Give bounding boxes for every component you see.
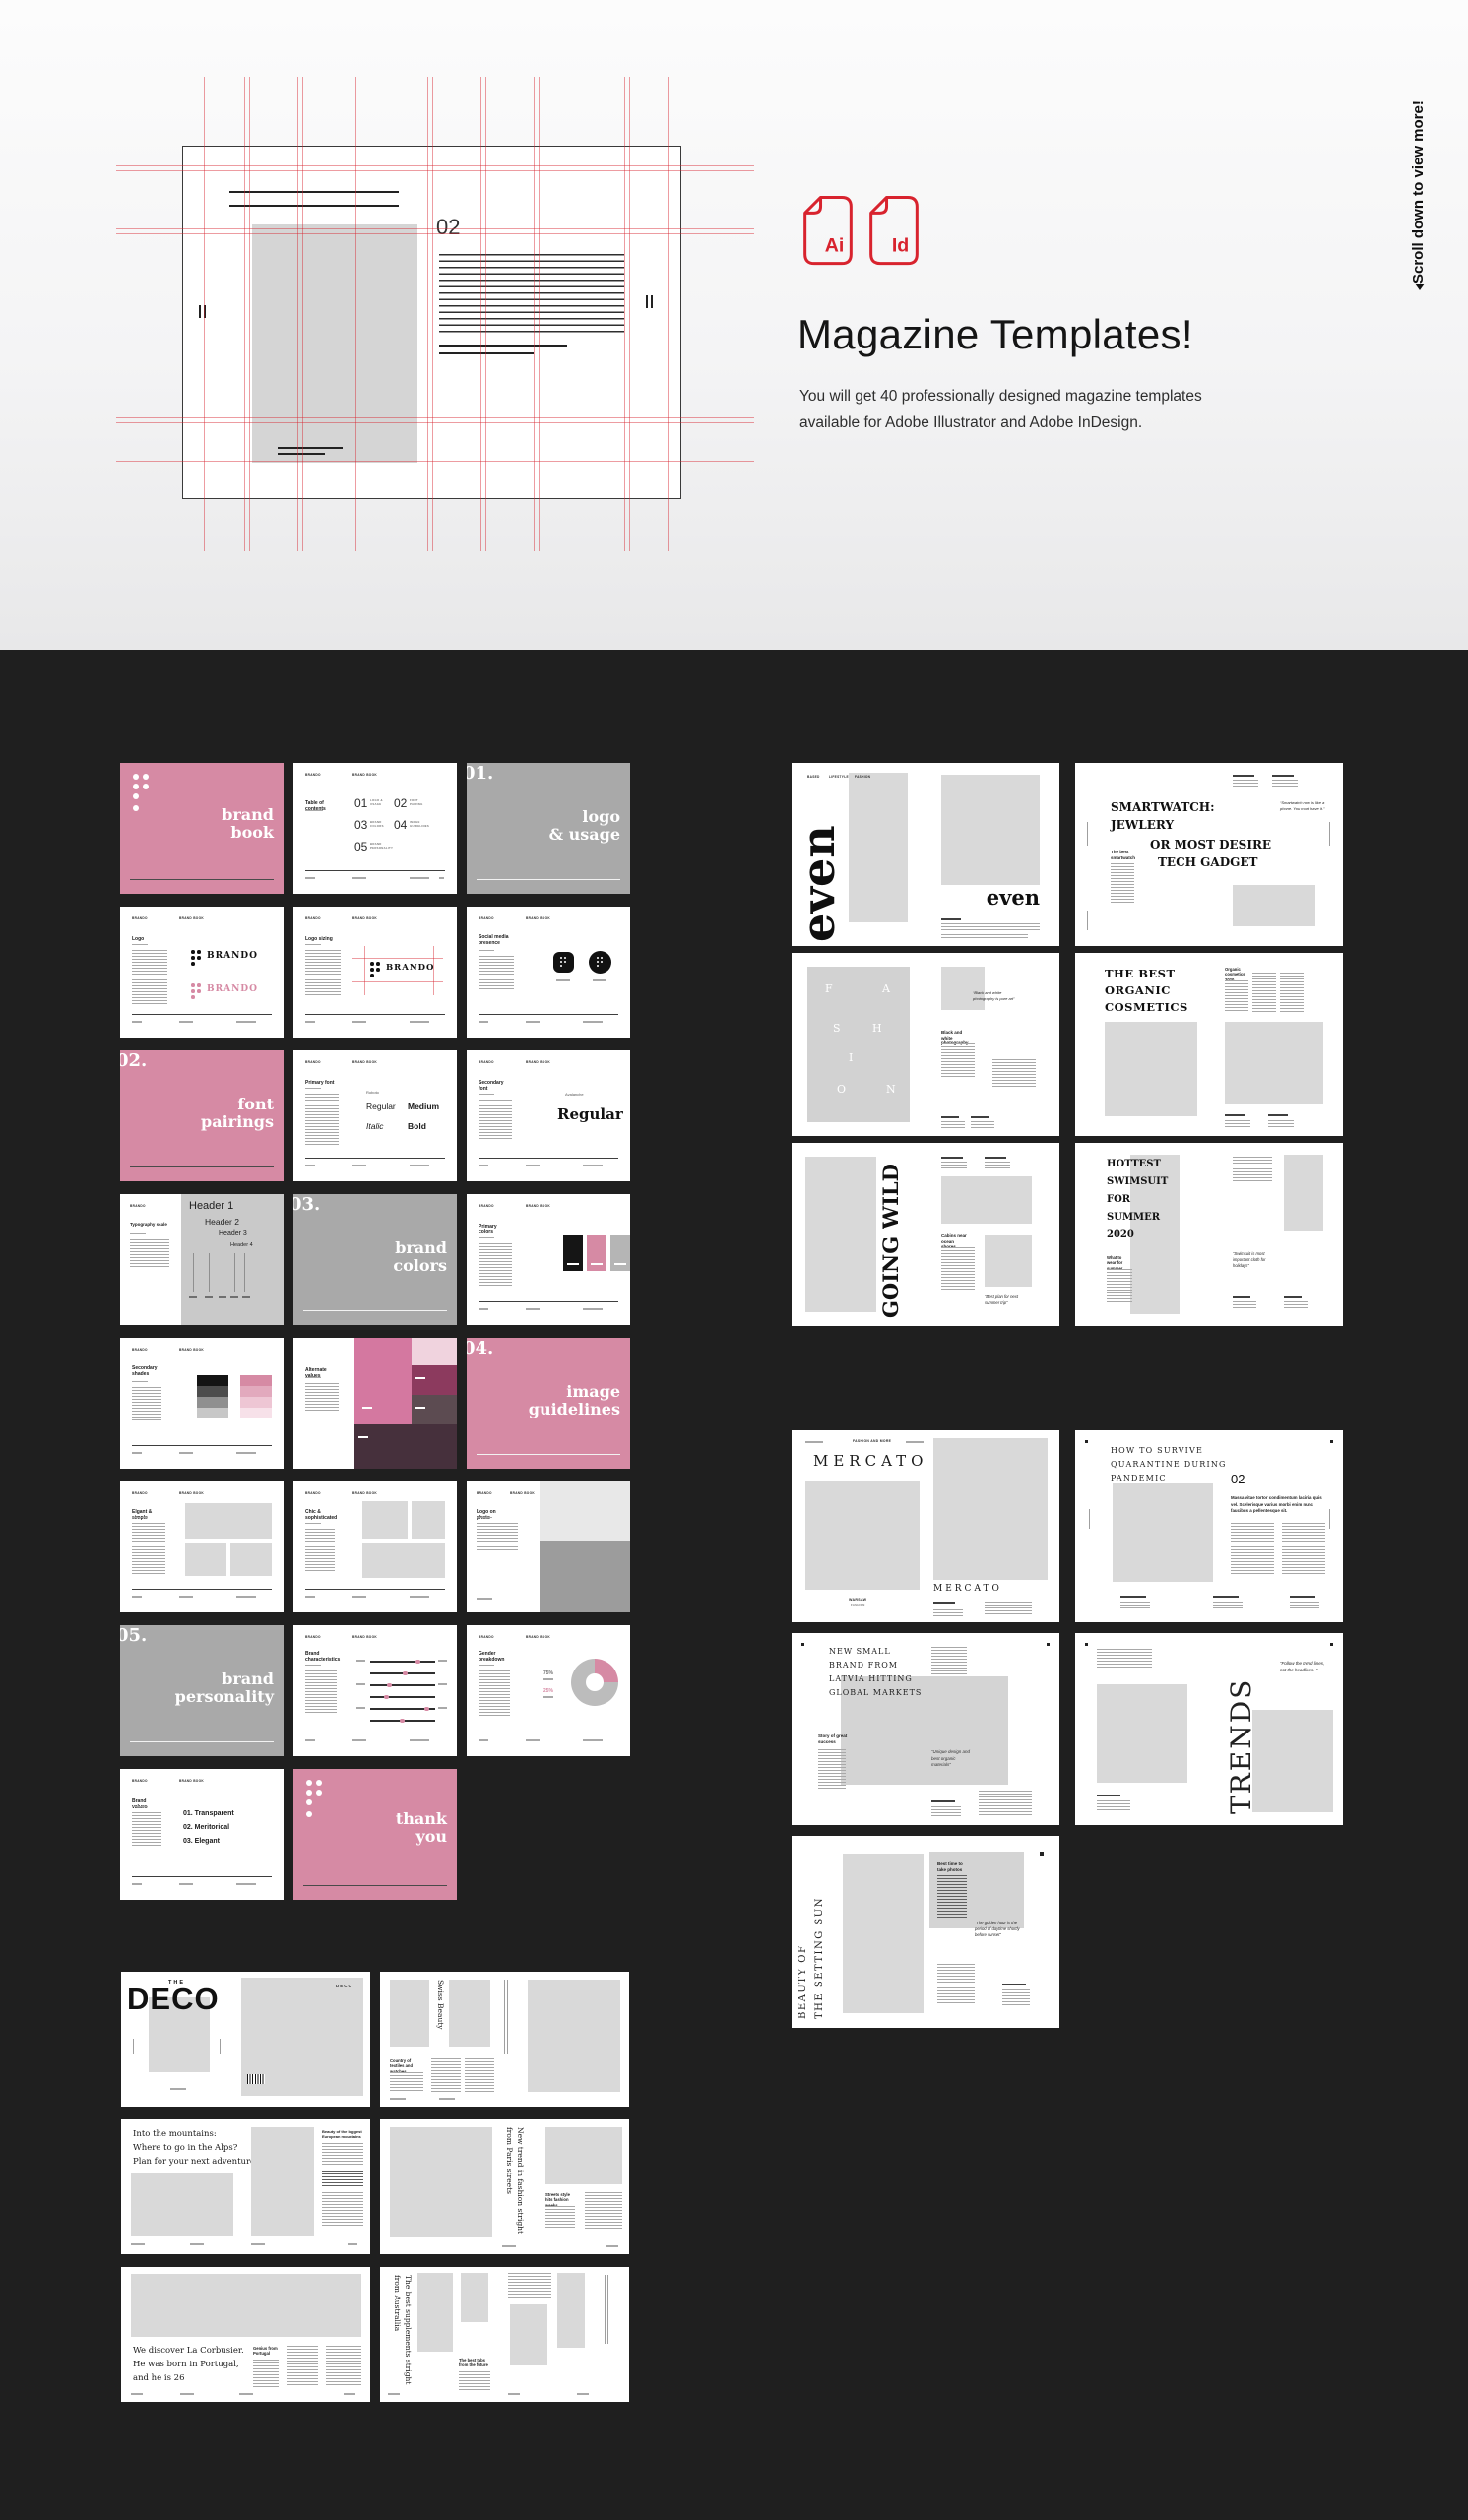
header-tag: FASHION AND MORE xyxy=(853,1439,891,1443)
title-underline xyxy=(479,1094,494,1095)
page-footer-rule xyxy=(305,1158,445,1159)
page-footer-text xyxy=(390,2098,406,2100)
grid-guide-vertical xyxy=(668,77,669,551)
color-swatch-pink xyxy=(587,1235,606,1271)
footer-lines xyxy=(1002,1989,1030,2005)
slider-dot xyxy=(387,1683,392,1688)
grid-guide-horizontal xyxy=(116,170,754,171)
page-footer-text xyxy=(410,1165,429,1166)
image-placeholder xyxy=(131,2274,361,2337)
image-placeholder xyxy=(545,2127,622,2184)
thumb-brand-characteristics: BRANDO BRAND BOOK Brand characteristics xyxy=(293,1625,457,1756)
donut-hole xyxy=(586,1673,604,1691)
image-placeholder xyxy=(390,1980,429,2047)
page-header-doc: BRAND BOOK xyxy=(526,1060,550,1064)
body-text-lines xyxy=(477,1523,518,1550)
shade-swatch xyxy=(240,1386,272,1397)
pt-label xyxy=(219,1296,226,1298)
brand-dots-logo xyxy=(306,1790,312,1795)
pull-quote: “Follow the trend lines, not the headlin… xyxy=(1280,1661,1331,1673)
brando-wordmark: BRANDO xyxy=(207,951,258,961)
edge-text xyxy=(133,2039,135,2054)
page-head xyxy=(985,1157,1006,1159)
chapter-number: 02. xyxy=(120,1050,147,1071)
slider-label xyxy=(438,1683,447,1685)
preview-page-number: 02 xyxy=(436,215,460,240)
page-header-doc: BRAND BOOK xyxy=(352,773,377,777)
thumb-corbusier-article: We discover La Corbusier. He was born in… xyxy=(121,2267,370,2402)
thumb-logo-on-photo: BRANDO BRAND BOOK Logo on photo xyxy=(467,1481,630,1612)
page-footer-text xyxy=(179,1452,193,1454)
chapter-title-line: personality xyxy=(175,1688,274,1706)
edge-text xyxy=(1087,911,1089,930)
deco-label: DECO xyxy=(336,1984,352,1988)
shade-swatch xyxy=(197,1408,228,1418)
pull-quote: “Unique design and best organic material… xyxy=(931,1749,973,1769)
fashion-letter: H xyxy=(872,1022,882,1035)
logo-dot xyxy=(370,968,374,972)
trends-title: TRENDS xyxy=(1225,1647,1272,1814)
stat-value-75: 75% xyxy=(543,1670,553,1676)
title-underline xyxy=(130,1233,146,1234)
pull-quote: “Black and white photography is pure art… xyxy=(973,990,1020,1002)
slider-line xyxy=(370,1661,435,1663)
brand-dots-logo xyxy=(316,1790,322,1795)
page-footer-rule xyxy=(305,870,445,871)
section-title: Logo on photo xyxy=(477,1509,510,1522)
article-lines xyxy=(585,2192,622,2230)
footer-head xyxy=(931,1800,955,1802)
headline-line: Plan for your next adventure. xyxy=(133,2157,258,2167)
body-text-lines xyxy=(479,956,514,989)
swiss-title: Swiss Beauty xyxy=(432,1980,445,2052)
chapter-title: image guidelines xyxy=(529,1383,620,1417)
page-footer-text xyxy=(577,2393,589,2395)
section-title: Typography scale xyxy=(130,1222,169,1228)
slider-label xyxy=(438,1707,447,1709)
barcode xyxy=(247,2074,265,2084)
image-placeholder xyxy=(849,773,908,922)
page-footer-text xyxy=(251,2243,265,2245)
cover-city: WARSAW xyxy=(849,1598,866,1603)
body-columns xyxy=(937,1964,975,2003)
page-footer-rule xyxy=(132,1014,272,1015)
grid-guide-horizontal xyxy=(116,461,754,462)
article-lines xyxy=(937,1875,967,1919)
body-text-lines xyxy=(132,1387,161,1422)
even-masthead: even xyxy=(792,787,851,942)
page-footer-rule xyxy=(305,1732,445,1733)
footer-lines xyxy=(1213,1602,1243,1609)
thumb-gender-breakdown: BRANDO BRAND BOOK Gender breakdown 75% 2… xyxy=(467,1625,630,1756)
headline-line: HOW TO SURVIVE xyxy=(1111,1446,1203,1455)
grid-guide-vertical xyxy=(480,77,481,551)
color-swatch-black xyxy=(563,1235,583,1271)
article-lines xyxy=(941,1247,975,1292)
page-header-brand: BRANDO xyxy=(477,1491,492,1495)
page-head-lines xyxy=(1233,780,1258,787)
chapter-rule xyxy=(477,879,620,880)
page-footer-rule xyxy=(305,1014,445,1015)
grid-guide-vertical xyxy=(427,77,428,551)
headline-line: LATVIA HITTING xyxy=(829,1674,913,1683)
preview-caption-line xyxy=(278,453,325,455)
thumb-primary-font: BRANDO BRAND BOOK Primary font Roboto Re… xyxy=(293,1050,457,1181)
page-footer-rule xyxy=(479,1732,618,1733)
article-lines xyxy=(322,2192,363,2228)
logo-dot xyxy=(197,950,201,954)
page-header-brand: BRANDO xyxy=(132,1348,148,1352)
image-placeholder xyxy=(185,1503,272,1539)
headline-line: NEW SMALL xyxy=(829,1647,891,1656)
slider-dot xyxy=(424,1707,429,1712)
image-placeholder xyxy=(843,1854,924,2013)
slider-line xyxy=(370,1684,435,1686)
page-footer-text xyxy=(479,1021,488,1023)
value-block-darkest xyxy=(354,1424,457,1469)
page-head-lines xyxy=(1272,780,1298,787)
article-lines xyxy=(287,2346,318,2387)
article-lines xyxy=(431,2058,461,2092)
id-label: Id xyxy=(892,235,909,257)
preview-headline-line xyxy=(229,205,399,207)
logo-dot xyxy=(370,962,374,966)
thumb-chapter-brand-colors: 03. brand colors xyxy=(293,1194,457,1325)
chapter-number: 05. xyxy=(120,1625,147,1646)
photo-dark-half xyxy=(540,1541,630,1612)
title-underline xyxy=(132,944,148,945)
section-title: Chic & sophisticated xyxy=(305,1509,335,1522)
brand-dots-logo xyxy=(306,1811,312,1817)
article-lines xyxy=(992,1059,1036,1089)
article-lines xyxy=(390,2072,423,2092)
headline-line: PANDEMIC xyxy=(1111,1474,1167,1482)
toc-label: FONT PAIRING xyxy=(410,799,425,806)
preview-margin-mark xyxy=(646,295,648,308)
preview-margin-mark xyxy=(651,295,653,308)
scale-line xyxy=(234,1253,235,1292)
page-header-doc: BRAND BOOK xyxy=(179,1779,204,1783)
page-footer-text xyxy=(236,1596,256,1598)
thumb-chic-sophisticated: BRANDO BRAND BOOK Chic & sophisticated xyxy=(293,1481,457,1612)
page-footer-text xyxy=(583,1739,603,1741)
page-footer-text xyxy=(352,1596,366,1598)
footer-head xyxy=(1290,1596,1315,1598)
article-head: Genius from Portugal xyxy=(253,2346,279,2357)
sizing-guide xyxy=(352,981,443,982)
slider-dot xyxy=(403,1671,408,1676)
image-placeholder xyxy=(941,775,1040,885)
page-footer-text xyxy=(479,1739,488,1741)
article-lines xyxy=(1225,980,1248,1012)
page-footer-text xyxy=(305,1596,315,1598)
thumb-even-cover: BASED LIFESTYLE FASHION even even xyxy=(792,763,1059,946)
image-placeholder xyxy=(805,1157,876,1312)
footer-lines xyxy=(933,1606,963,1616)
grid-guide-vertical xyxy=(539,77,540,551)
font-weight-sample: Bold xyxy=(408,1121,426,1131)
footer-head xyxy=(971,1116,989,1118)
brand-dots-logo xyxy=(306,1799,312,1805)
page-footer-rule xyxy=(479,1301,618,1302)
header-sample-1: Header 1 xyxy=(189,1200,233,1212)
image-placeholder xyxy=(805,1481,920,1590)
grid-guide-vertical xyxy=(485,77,486,551)
page-header-doc: BRAND BOOK xyxy=(352,1491,377,1495)
scale-line xyxy=(209,1253,210,1292)
toc-num: 02 xyxy=(394,796,407,810)
chapter-title-line: pairings xyxy=(201,1113,274,1131)
section-title: Gender breakdown xyxy=(479,1651,508,1664)
image-placeholder xyxy=(557,2273,585,2348)
page-title: Magazine Templates! xyxy=(798,311,1193,358)
logo-dot xyxy=(191,950,195,954)
stat-label xyxy=(543,1678,553,1680)
ai-label: Ai xyxy=(825,235,845,257)
icon-caption xyxy=(593,979,606,981)
edge-text xyxy=(1329,822,1331,846)
article-head: Story of great success xyxy=(818,1733,848,1744)
thumb-chapter-brand-personality: 05. brand personality xyxy=(120,1625,284,1756)
page-footer-text xyxy=(348,2243,357,2245)
shade-swatch xyxy=(197,1397,228,1408)
intro-lines xyxy=(931,1647,967,1680)
brand-dots-logo xyxy=(316,1780,322,1786)
scroll-down-arrow-icon xyxy=(1415,283,1425,290)
sunset-title-line: BEAUTY OF xyxy=(798,1852,815,2019)
page-header-brand: BRANDO xyxy=(132,1491,148,1495)
page-footer-text xyxy=(305,877,315,879)
headline-line: We discover La Corbusier. xyxy=(133,2346,244,2356)
headline-line: BRAND FROM xyxy=(829,1661,898,1669)
title-underline xyxy=(132,1517,148,1518)
thumb-paris-trend: New trend in fashion stright from Paris … xyxy=(380,2119,629,2254)
page-footer-text xyxy=(344,2393,355,2395)
article-lines xyxy=(326,2346,361,2387)
page-footer-text xyxy=(179,1021,193,1023)
article-lines xyxy=(1107,1269,1132,1304)
thumb-swiss-beauty: Swiss Beauty Country of textiles and wat… xyxy=(380,1972,629,2107)
thumb-latvia-brand: NEW SMALL BRAND FROM LATVIA HITTING GLOB… xyxy=(792,1633,1059,1825)
grid-guide-vertical xyxy=(534,77,535,551)
toc-underline xyxy=(305,810,323,811)
image-placeholder xyxy=(412,1501,445,1539)
thumb-brandbook-cover: brand book xyxy=(120,763,284,894)
section-title: Logo sizing xyxy=(305,936,333,942)
page-header-brand: BRANDO xyxy=(132,916,148,920)
title-underline xyxy=(477,1517,492,1518)
toc-label: IMAGE GUIDELINES xyxy=(410,821,425,828)
page-footer-text xyxy=(508,2393,520,2395)
grid-guide-vertical xyxy=(432,77,433,551)
page-footer-text xyxy=(132,1452,142,1454)
thumb-quarantine-article: HOW TO SURVIVE QUARANTINE DURING PANDEMI… xyxy=(1075,1430,1343,1622)
body-text-lines xyxy=(132,1812,161,1848)
thumb-elegant-simple: BRANDO BRAND BOOK Elgant & simple xyxy=(120,1481,284,1612)
page-footer-text xyxy=(190,2243,204,2245)
thumb-chapter-image-guidelines: 04. image guidelines xyxy=(467,1338,630,1469)
cover-tag: BASED xyxy=(807,775,820,779)
grid-guide-vertical xyxy=(355,77,356,551)
article-lines xyxy=(1252,973,1276,1012)
body-text-lines xyxy=(305,1094,339,1145)
page-footer-text xyxy=(410,877,429,879)
article-lines xyxy=(459,2371,490,2391)
thumb-smartwatch-spread: SMARTWATCH: JEWLERY OR MOST DESIRE TECH … xyxy=(1075,763,1343,946)
footer-lines xyxy=(941,1121,965,1129)
chapter-title-line: font xyxy=(201,1096,274,1113)
page-header-brand: BRANDO xyxy=(479,916,494,920)
headline-line: HOTTEST xyxy=(1107,1159,1161,1169)
scale-line xyxy=(244,1253,245,1292)
preview-body-text-lines xyxy=(439,254,624,333)
shade-swatch xyxy=(240,1408,272,1418)
stat-label xyxy=(543,1696,553,1698)
brando-wordmark-pink: BRANDO xyxy=(207,984,258,994)
chapter-title-line: & usage xyxy=(549,826,620,844)
shade-swatch xyxy=(240,1375,272,1386)
page-header-doc: BRAND BOOK xyxy=(526,1204,550,1208)
page-header-doc: BRAND BOOK xyxy=(526,916,550,920)
brand-dots-logo xyxy=(133,784,139,789)
toc-label: LOGO & USAGE xyxy=(370,799,386,806)
headline-line: SMARTWATCH: xyxy=(1111,800,1215,814)
font-weight-sample: Italic xyxy=(366,1121,383,1131)
image-placeholder xyxy=(362,1543,445,1578)
thumb-chapter-font-pairings: 02. font pairings xyxy=(120,1050,284,1181)
section-title: Secondary shades xyxy=(132,1365,161,1378)
brand-dots-logo xyxy=(133,805,139,811)
image-placeholder xyxy=(1233,885,1315,926)
page-footer-text xyxy=(526,1165,540,1166)
footer-lines xyxy=(931,1806,961,1816)
thumb-deco-cover: THE DECO DECO xyxy=(121,1972,370,2107)
swatch-label xyxy=(591,1263,603,1265)
logo-dot xyxy=(191,962,195,966)
magazine-grid-preview: 02 xyxy=(0,0,788,610)
even-title: even xyxy=(987,885,1040,910)
logo-dot-pink xyxy=(191,995,195,999)
logo-dot-pink xyxy=(191,983,195,987)
page-footer-text xyxy=(439,2098,455,2100)
page-header-doc: BRAND BOOK xyxy=(526,1635,550,1639)
title-underline xyxy=(305,944,321,945)
body-text-lines xyxy=(305,1383,339,1413)
section-title: Secondary font xyxy=(479,1080,508,1093)
slider-dot xyxy=(384,1695,389,1700)
headline-line: FOR xyxy=(1107,1194,1130,1205)
headline-line: SUMMER xyxy=(1107,1212,1160,1223)
cover-city-sub: FASHION xyxy=(851,1604,865,1607)
page-footer-text xyxy=(606,2245,618,2247)
pull-quote: “The golden hour is the period of daytim… xyxy=(975,1921,1026,1938)
caption-head xyxy=(941,918,961,920)
mercato-masthead: MERCATO xyxy=(813,1452,927,1470)
image-placeholder xyxy=(1225,1022,1323,1104)
value-block-graymaroon xyxy=(412,1395,457,1424)
typescale-panel xyxy=(181,1194,284,1325)
page-footer-text xyxy=(502,2245,516,2247)
hero-section: 02 Ai xyxy=(0,0,1468,650)
body-text-lines xyxy=(305,1670,337,1714)
preview-headline-line xyxy=(229,191,399,193)
article-lines xyxy=(1233,1157,1272,1182)
grid-guide-horizontal xyxy=(116,233,754,234)
thumb-alternate-values: Alternate values xyxy=(293,1338,457,1469)
cover-rule xyxy=(303,1885,447,1886)
footer-head xyxy=(1225,1114,1245,1116)
shade-swatch xyxy=(197,1375,228,1386)
image-placeholder xyxy=(1284,1155,1323,1231)
shade-swatch xyxy=(240,1397,272,1408)
footer-head xyxy=(1002,1984,1026,1985)
image-placeholder xyxy=(185,1543,226,1576)
page-header-doc: BRAND BOOK xyxy=(510,1491,535,1495)
page-footer-text xyxy=(526,1308,540,1310)
footer-head xyxy=(1097,1795,1120,1796)
headline-line: Into the mountains: xyxy=(133,2129,217,2139)
swatch-label xyxy=(614,1263,626,1265)
article-lines xyxy=(1280,973,1304,1012)
body-text-lines xyxy=(305,950,341,997)
headline-line: QUARANTINE DURING xyxy=(1111,1460,1227,1469)
logo-dot-pink xyxy=(197,989,201,993)
toc-label: BRAND COLORS xyxy=(370,821,386,828)
fashion-letter: S xyxy=(833,1022,841,1035)
font-weight-sample: Medium xyxy=(408,1102,439,1111)
caption-lines xyxy=(941,923,1040,931)
toc-num: 01 xyxy=(354,796,367,810)
thumb-organic-cosmetics: THE BEST ORGANIC COSMETICS Organic cosme… xyxy=(1075,953,1343,1136)
page-footer-text xyxy=(305,1021,315,1023)
footer-head xyxy=(1233,1296,1250,1298)
header-sample-3: Header 3 xyxy=(219,1230,247,1237)
article-lines xyxy=(818,1749,846,1789)
chapter-title-line: brand xyxy=(393,1239,447,1257)
footer-head xyxy=(933,1602,955,1604)
intro-lines xyxy=(1097,1649,1152,1672)
image-placeholder xyxy=(941,967,985,1010)
title-underline xyxy=(305,1523,321,1524)
slider-line xyxy=(370,1696,435,1698)
image-placeholder xyxy=(1113,1483,1213,1582)
body-text-lines xyxy=(130,1239,169,1269)
image-placeholder xyxy=(449,1980,490,2047)
indesign-file-icon: Id xyxy=(866,193,922,270)
thumb-setting-sun: BEAUTY OF THE SETTING SUN Best time to t… xyxy=(792,1836,1059,2028)
section-title: Elgant & simple xyxy=(132,1509,167,1522)
thumb-mercato-cover: FASHION AND MORE MERCATO WARSAW FASHION … xyxy=(792,1430,1059,1622)
toc-num: 04 xyxy=(394,818,407,832)
brand-value-item: 03. Elegant xyxy=(183,1838,220,1847)
section-title: Social media presence xyxy=(479,934,512,947)
grid-guide-vertical xyxy=(624,77,625,551)
logo-dot-pink xyxy=(191,989,195,993)
cover-tag: LIFESTYLE xyxy=(829,775,849,779)
page-footer-text xyxy=(479,1165,488,1166)
title-underline xyxy=(132,1381,148,1382)
chapter-title: logo & usage xyxy=(549,808,620,843)
body-text-lines xyxy=(305,1529,335,1572)
headline-line: JEWLERY xyxy=(1111,818,1174,832)
edge-text xyxy=(220,2039,222,2054)
page-description-line2: available for Adobe Illustrator and Adob… xyxy=(799,414,1142,432)
header-sample-4: Header 4 xyxy=(230,1242,253,1248)
pt-label xyxy=(205,1296,213,1298)
toc-label: BRAND PERSONALITY xyxy=(370,843,388,850)
thanks-title-line: you xyxy=(396,1828,447,1846)
page-footer-text xyxy=(410,1021,429,1023)
